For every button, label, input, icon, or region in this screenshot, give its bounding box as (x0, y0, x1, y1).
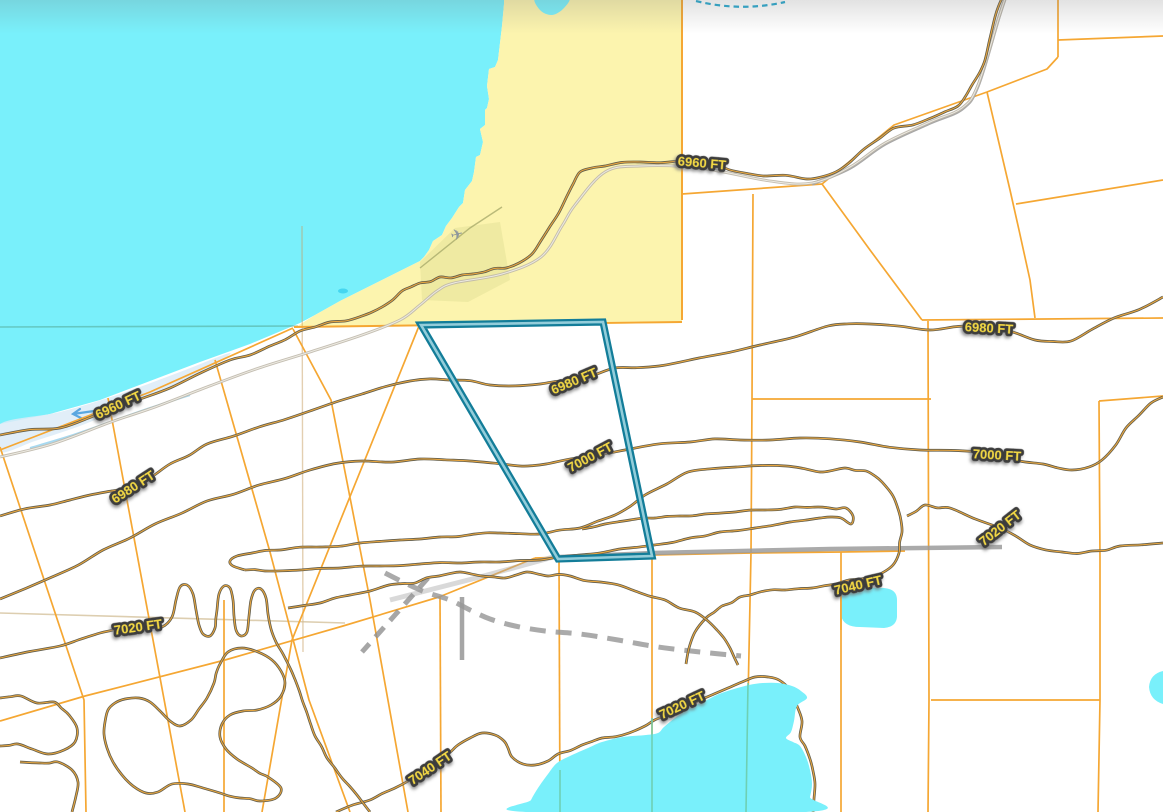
svg-text:7000 FT: 7000 FT (972, 446, 1021, 464)
svg-text:6980 FT: 6980 FT (964, 319, 1013, 337)
